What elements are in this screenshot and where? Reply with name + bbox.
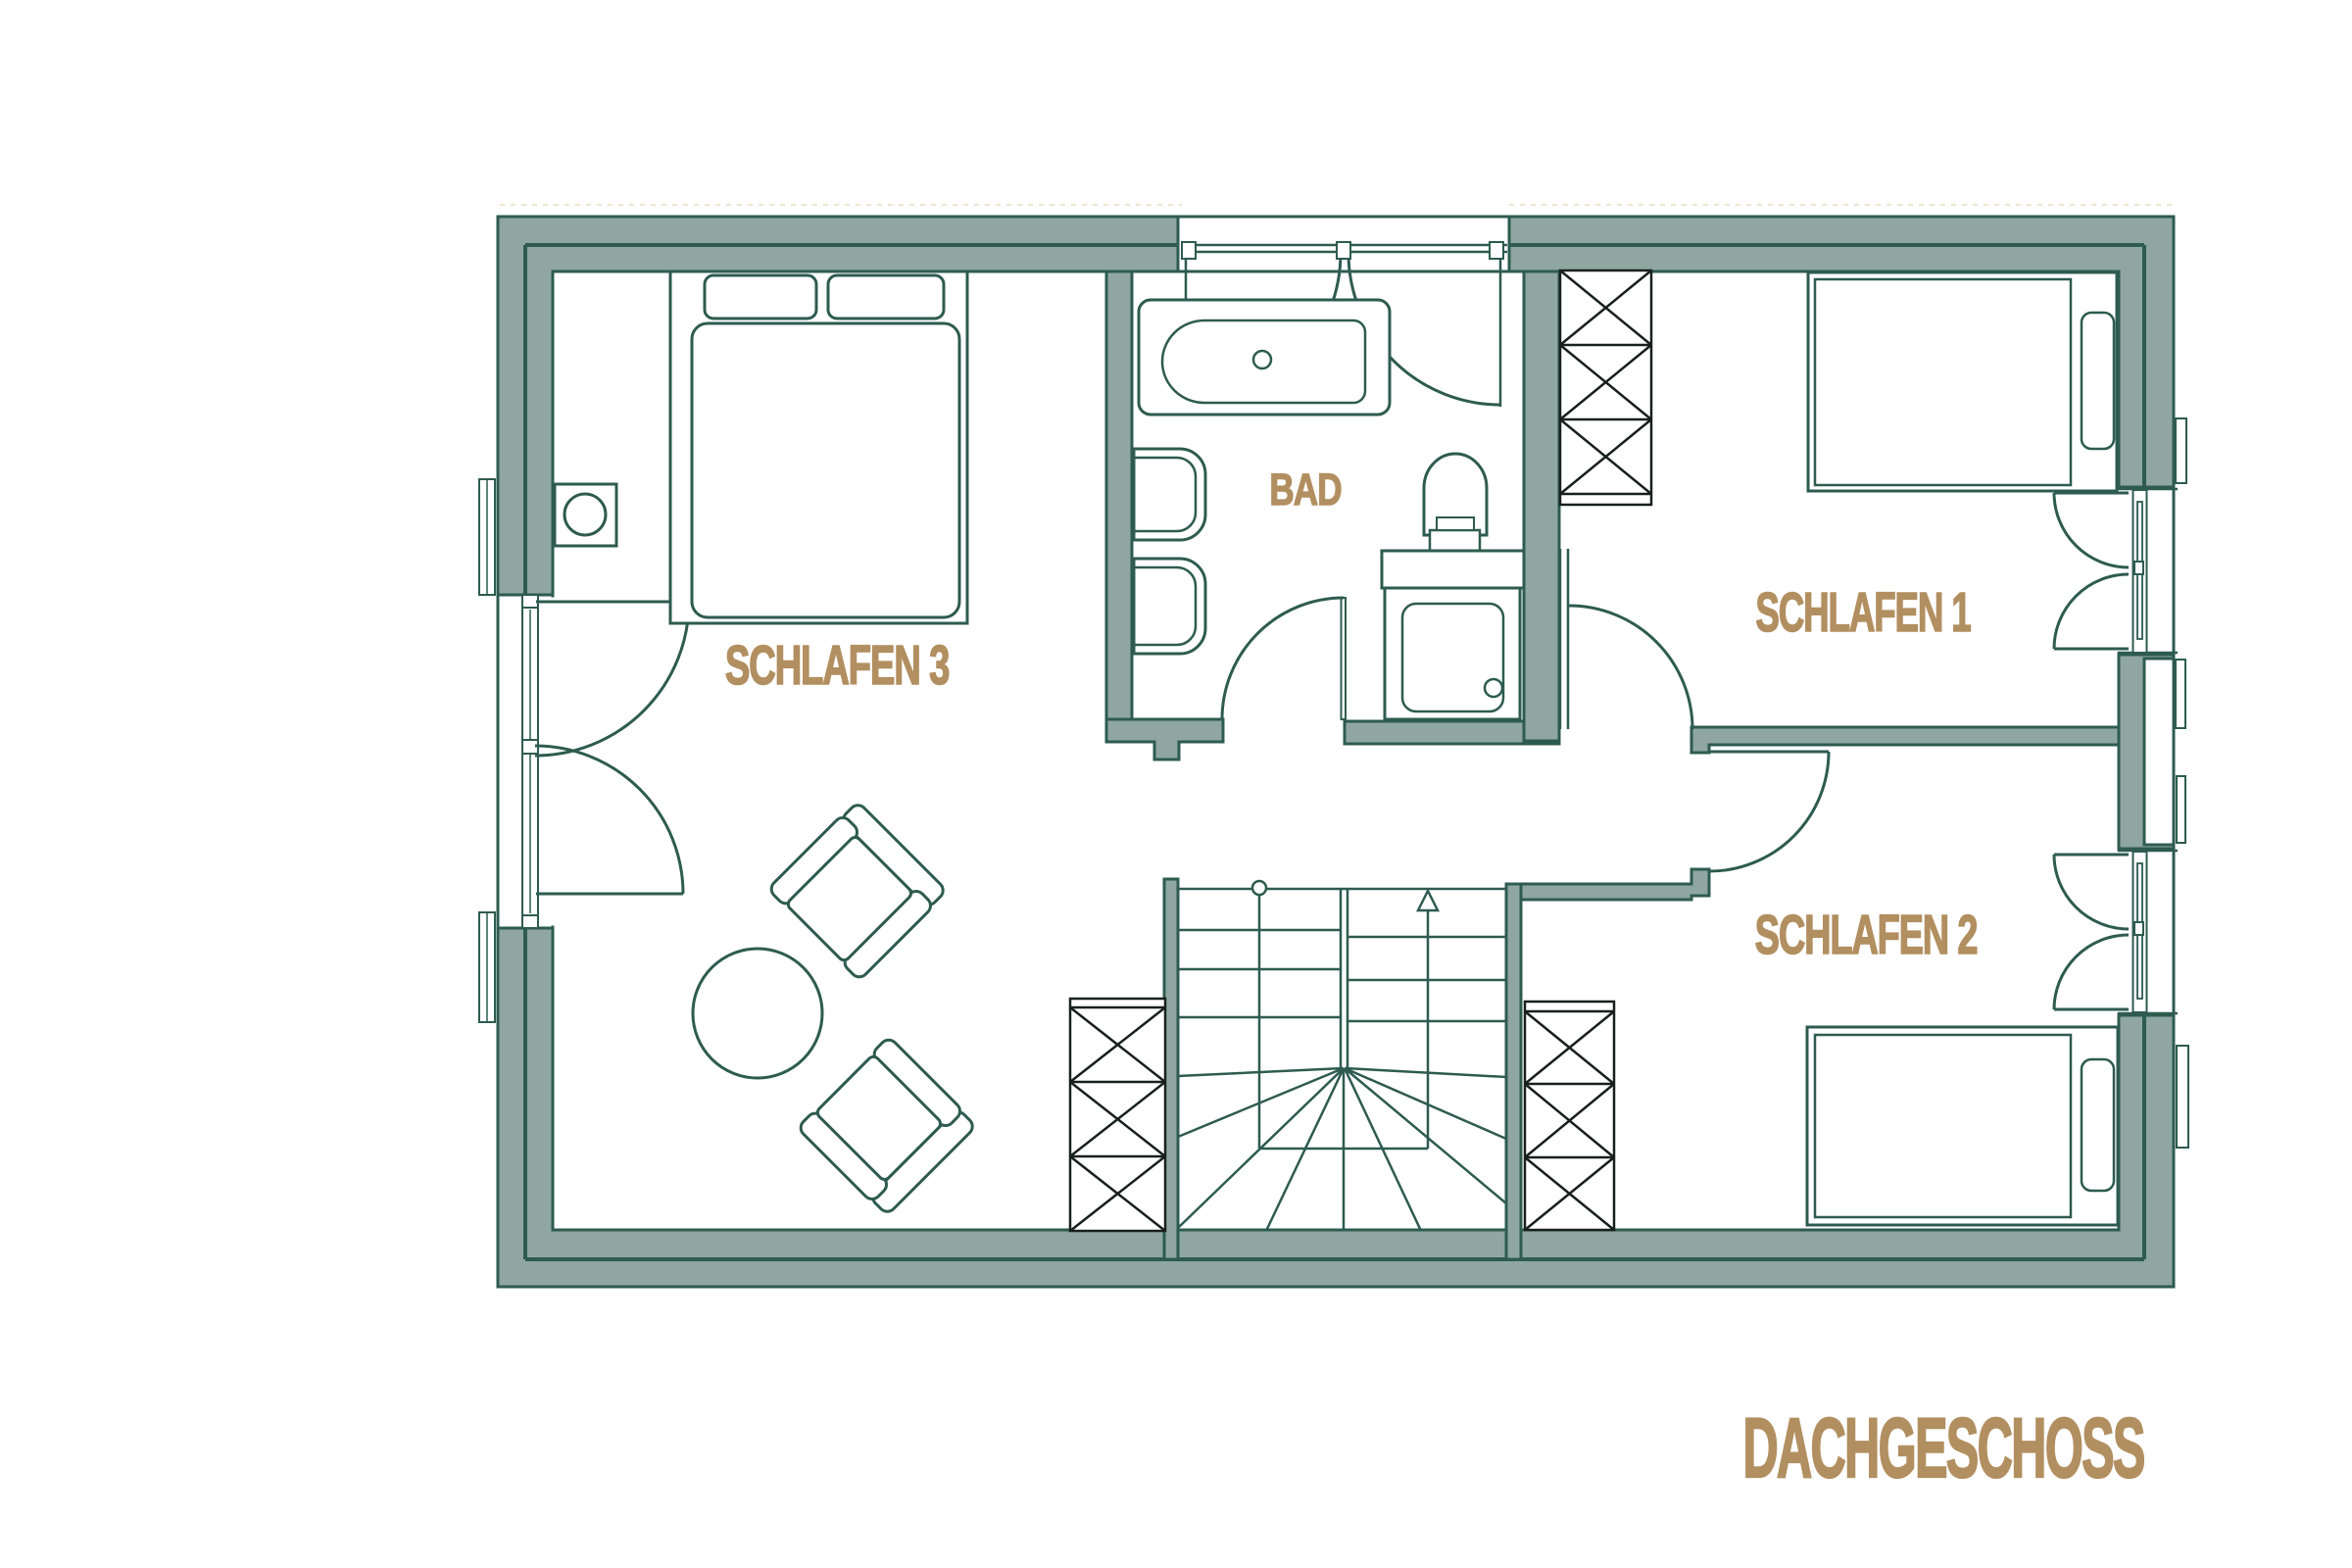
svg-text:SCHLAFEN 2: SCHLAFEN 2 xyxy=(1755,904,1978,966)
svg-text:SCHLAFEN 1: SCHLAFEN 1 xyxy=(1755,582,1971,644)
svg-text:BAD: BAD xyxy=(1269,465,1341,514)
svg-text:DACHGESCHOSS: DACHGESCHOSS xyxy=(1742,1400,2144,1494)
svg-text:SCHLAFEN 3: SCHLAFEN 3 xyxy=(725,635,950,697)
